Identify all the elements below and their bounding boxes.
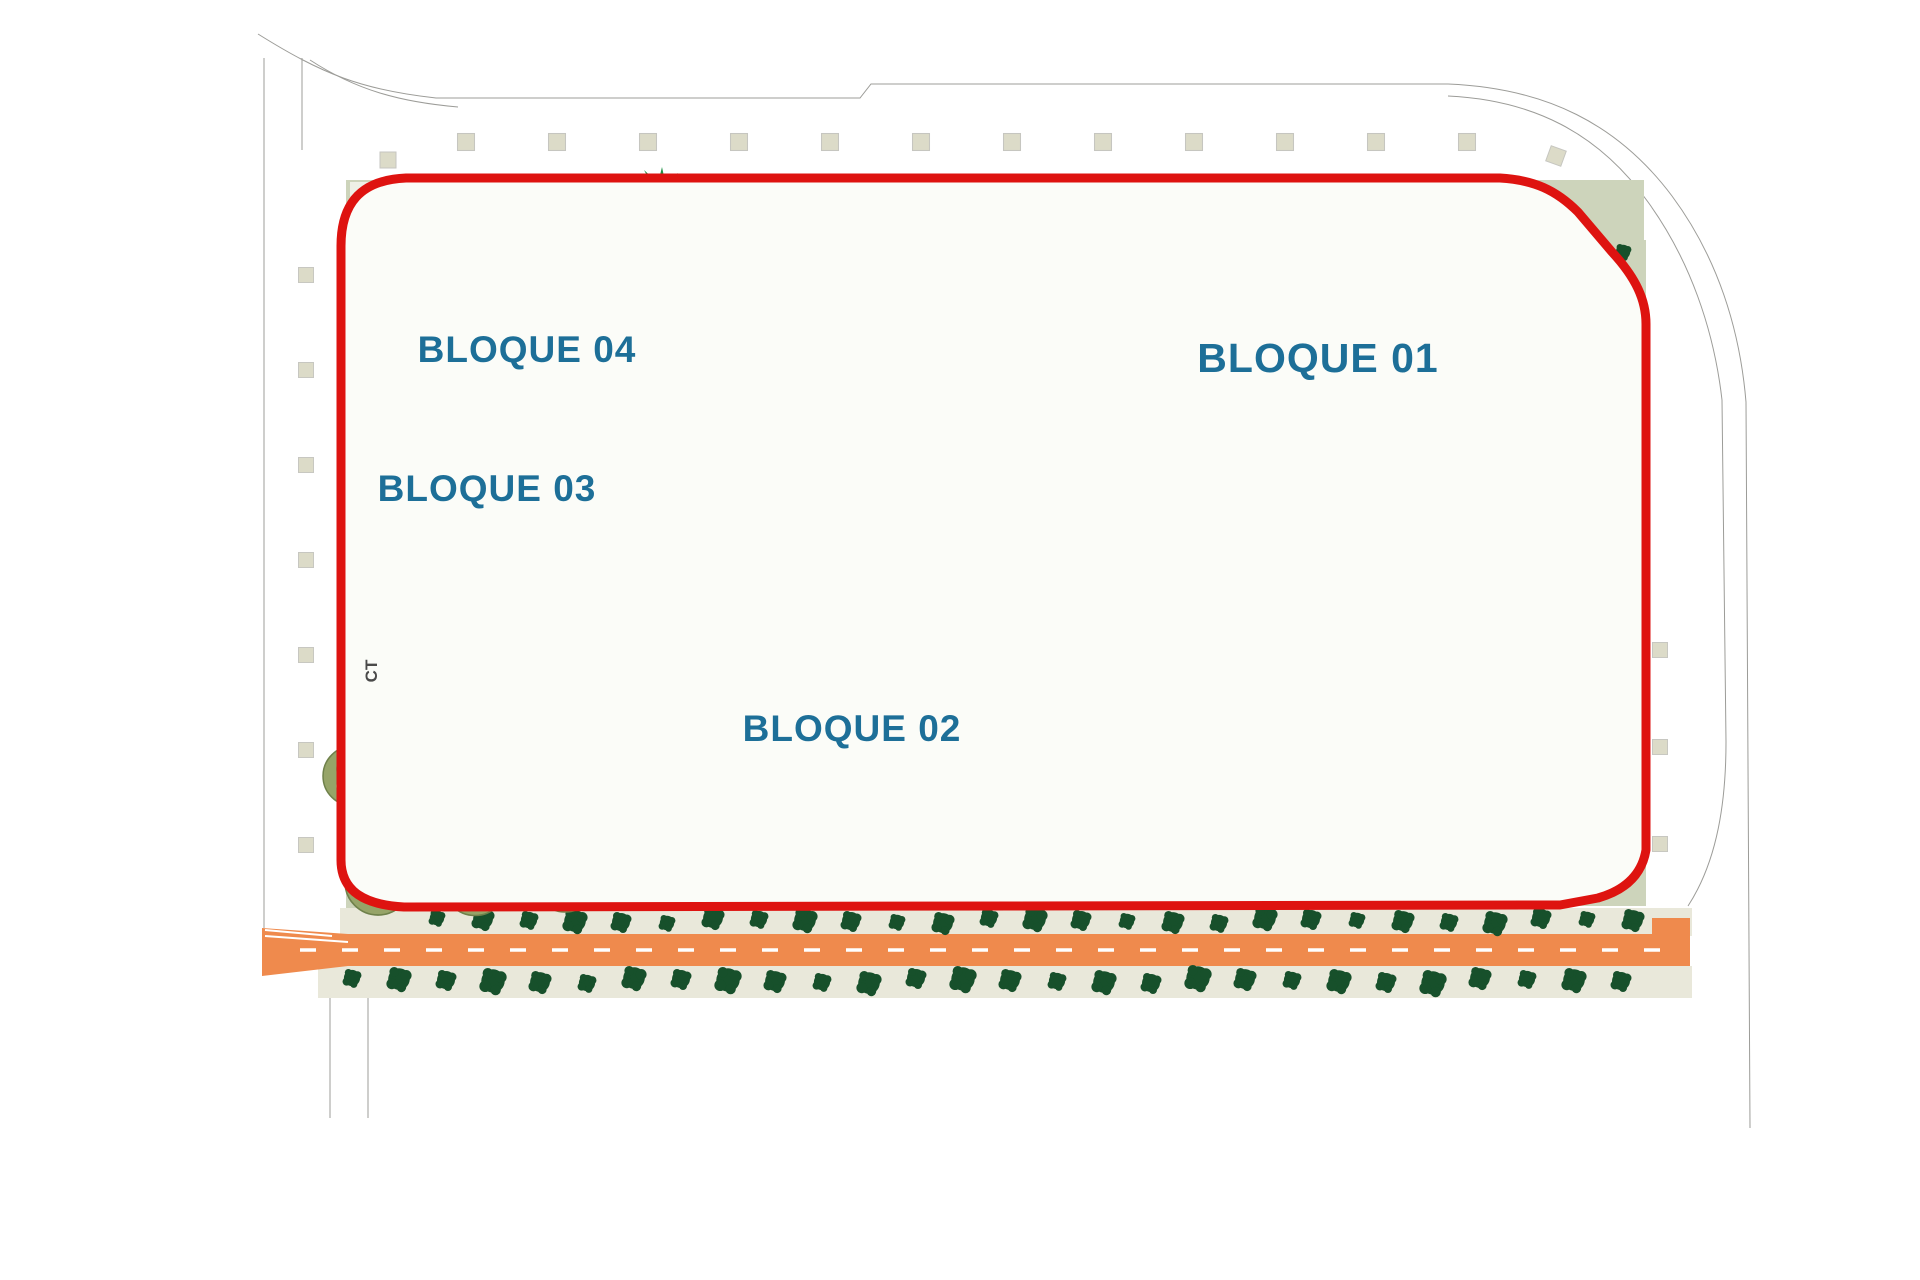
lamp-square-icon [731, 134, 748, 151]
lamp-squares-top [458, 134, 1476, 151]
street-edge-top-inner [310, 60, 458, 107]
lamp-square-icon [1652, 642, 1667, 657]
lamp-square-icon [1368, 134, 1385, 151]
label-ct: CT [362, 659, 381, 682]
site-plan-svg: BLOQUE 04 BLOQUE 03 BLOQUE 01 BLOQUE 02 … [0, 0, 1920, 1280]
lamp-square-icon [298, 267, 313, 282]
lamp-square-icon [298, 362, 313, 377]
lamp-square-icon [1546, 146, 1567, 167]
lamp-square-icon [549, 134, 566, 151]
site-plan-image: BLOQUE 04 BLOQUE 03 BLOQUE 01 BLOQUE 02 … [0, 0, 1920, 1280]
street-edge-left [264, 58, 302, 928]
lamp-square-icon [1459, 134, 1476, 151]
lamp-square-icon [380, 152, 396, 168]
label-bloque-03: BLOQUE 03 [378, 468, 597, 509]
lamp-square-icon [298, 837, 313, 852]
street-edge-bottom-left [330, 998, 368, 1118]
lamp-square-icon [1186, 134, 1203, 151]
lamp-square-icon [298, 552, 313, 567]
label-bloque-01: BLOQUE 01 [1197, 335, 1438, 381]
lamp-square-icon [298, 647, 313, 662]
lamp-square-icon [458, 134, 475, 151]
lamp-square-icon [913, 134, 930, 151]
label-bloque-02: BLOQUE 02 [743, 708, 962, 749]
lamp-squares-left [298, 267, 313, 852]
lamp-square-icon [1095, 134, 1112, 151]
lamp-square-icon [1277, 134, 1294, 151]
lamp-square-icon [1004, 134, 1021, 151]
lamp-square-icon [298, 742, 313, 757]
label-bloque-04: BLOQUE 04 [418, 329, 637, 370]
site-boundary [341, 178, 1646, 907]
lamp-square-icon [822, 134, 839, 151]
lamp-square-icon [640, 134, 657, 151]
lamp-square-icon [1652, 836, 1667, 851]
road-step [1652, 918, 1690, 935]
lamp-squares-right [1652, 642, 1667, 851]
lamp-square-icon [298, 457, 313, 472]
lamp-square-icon [1652, 739, 1667, 754]
